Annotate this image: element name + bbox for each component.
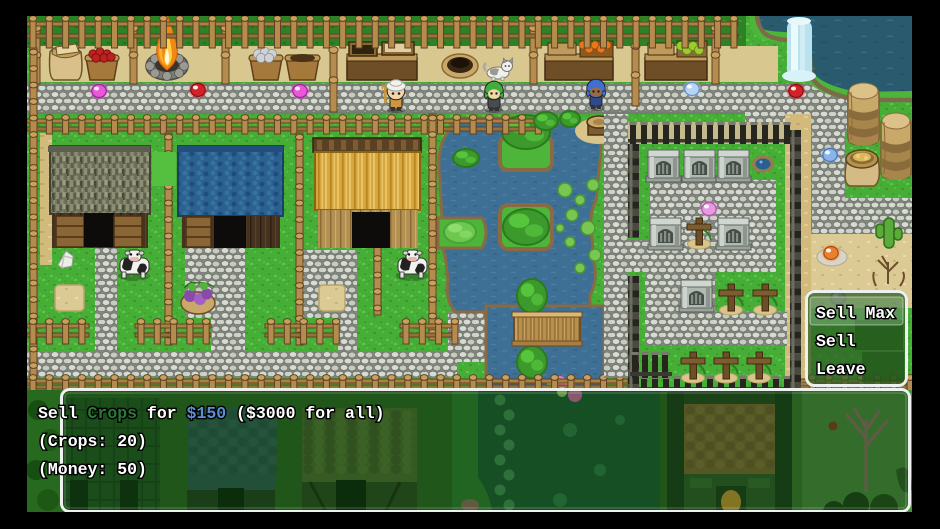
svg-text:(Crops: 20): (Crops: 20)	[38, 432, 147, 451]
svg-text:Sell Crops for $150 ($3000 for: Sell Crops for $150 ($3000 for all)	[38, 404, 385, 423]
svg-text:Sell Max: Sell Max	[816, 304, 895, 323]
svg-text:(Money: 50): (Money: 50)	[38, 460, 147, 479]
svg-text:Leave: Leave	[816, 360, 866, 379]
svg-text:Sell: Sell	[816, 332, 856, 351]
